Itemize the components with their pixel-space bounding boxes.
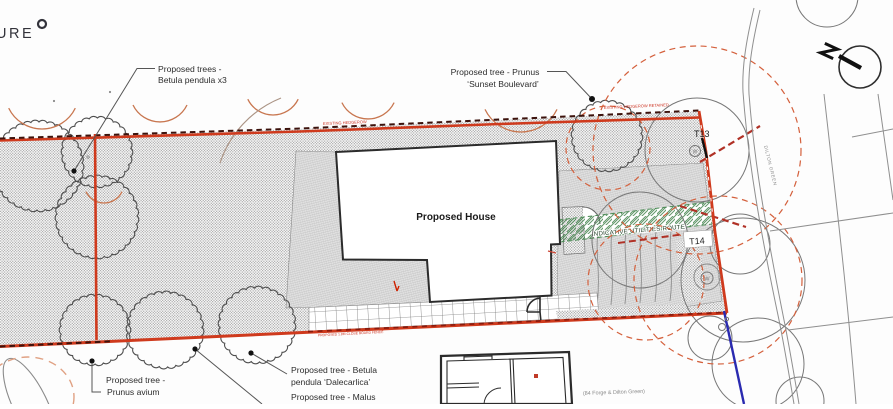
svg-text:Proposed trees -: Proposed trees - [158,64,222,74]
svg-text:Prunus avium: Prunus avium [107,387,160,397]
svg-text:URE: URE [0,26,34,42]
svg-text:Betula pendula x3: Betula pendula x3 [158,75,227,85]
svg-text:Proposed tree -: Proposed tree - [106,375,165,385]
svg-text:Proposed House: Proposed House [416,212,496,223]
svg-text:W: W [704,277,710,283]
svg-text:Proposed tree - Malus: Proposed tree - Malus [291,392,376,402]
svg-text:W: W [693,150,698,156]
svg-text:T14: T14 [689,236,705,247]
svg-text:‘Sunset Boulevard’: ‘Sunset Boulevard’ [467,79,539,89]
svg-text:T13: T13 [694,129,710,139]
svg-text:Proposed tree - Betula: Proposed tree - Betula [291,365,377,375]
svg-text:pendula ‘Dalecarlica’: pendula ‘Dalecarlica’ [291,377,370,387]
svg-text:Proposed tree - Prunus: Proposed tree - Prunus [451,67,540,77]
